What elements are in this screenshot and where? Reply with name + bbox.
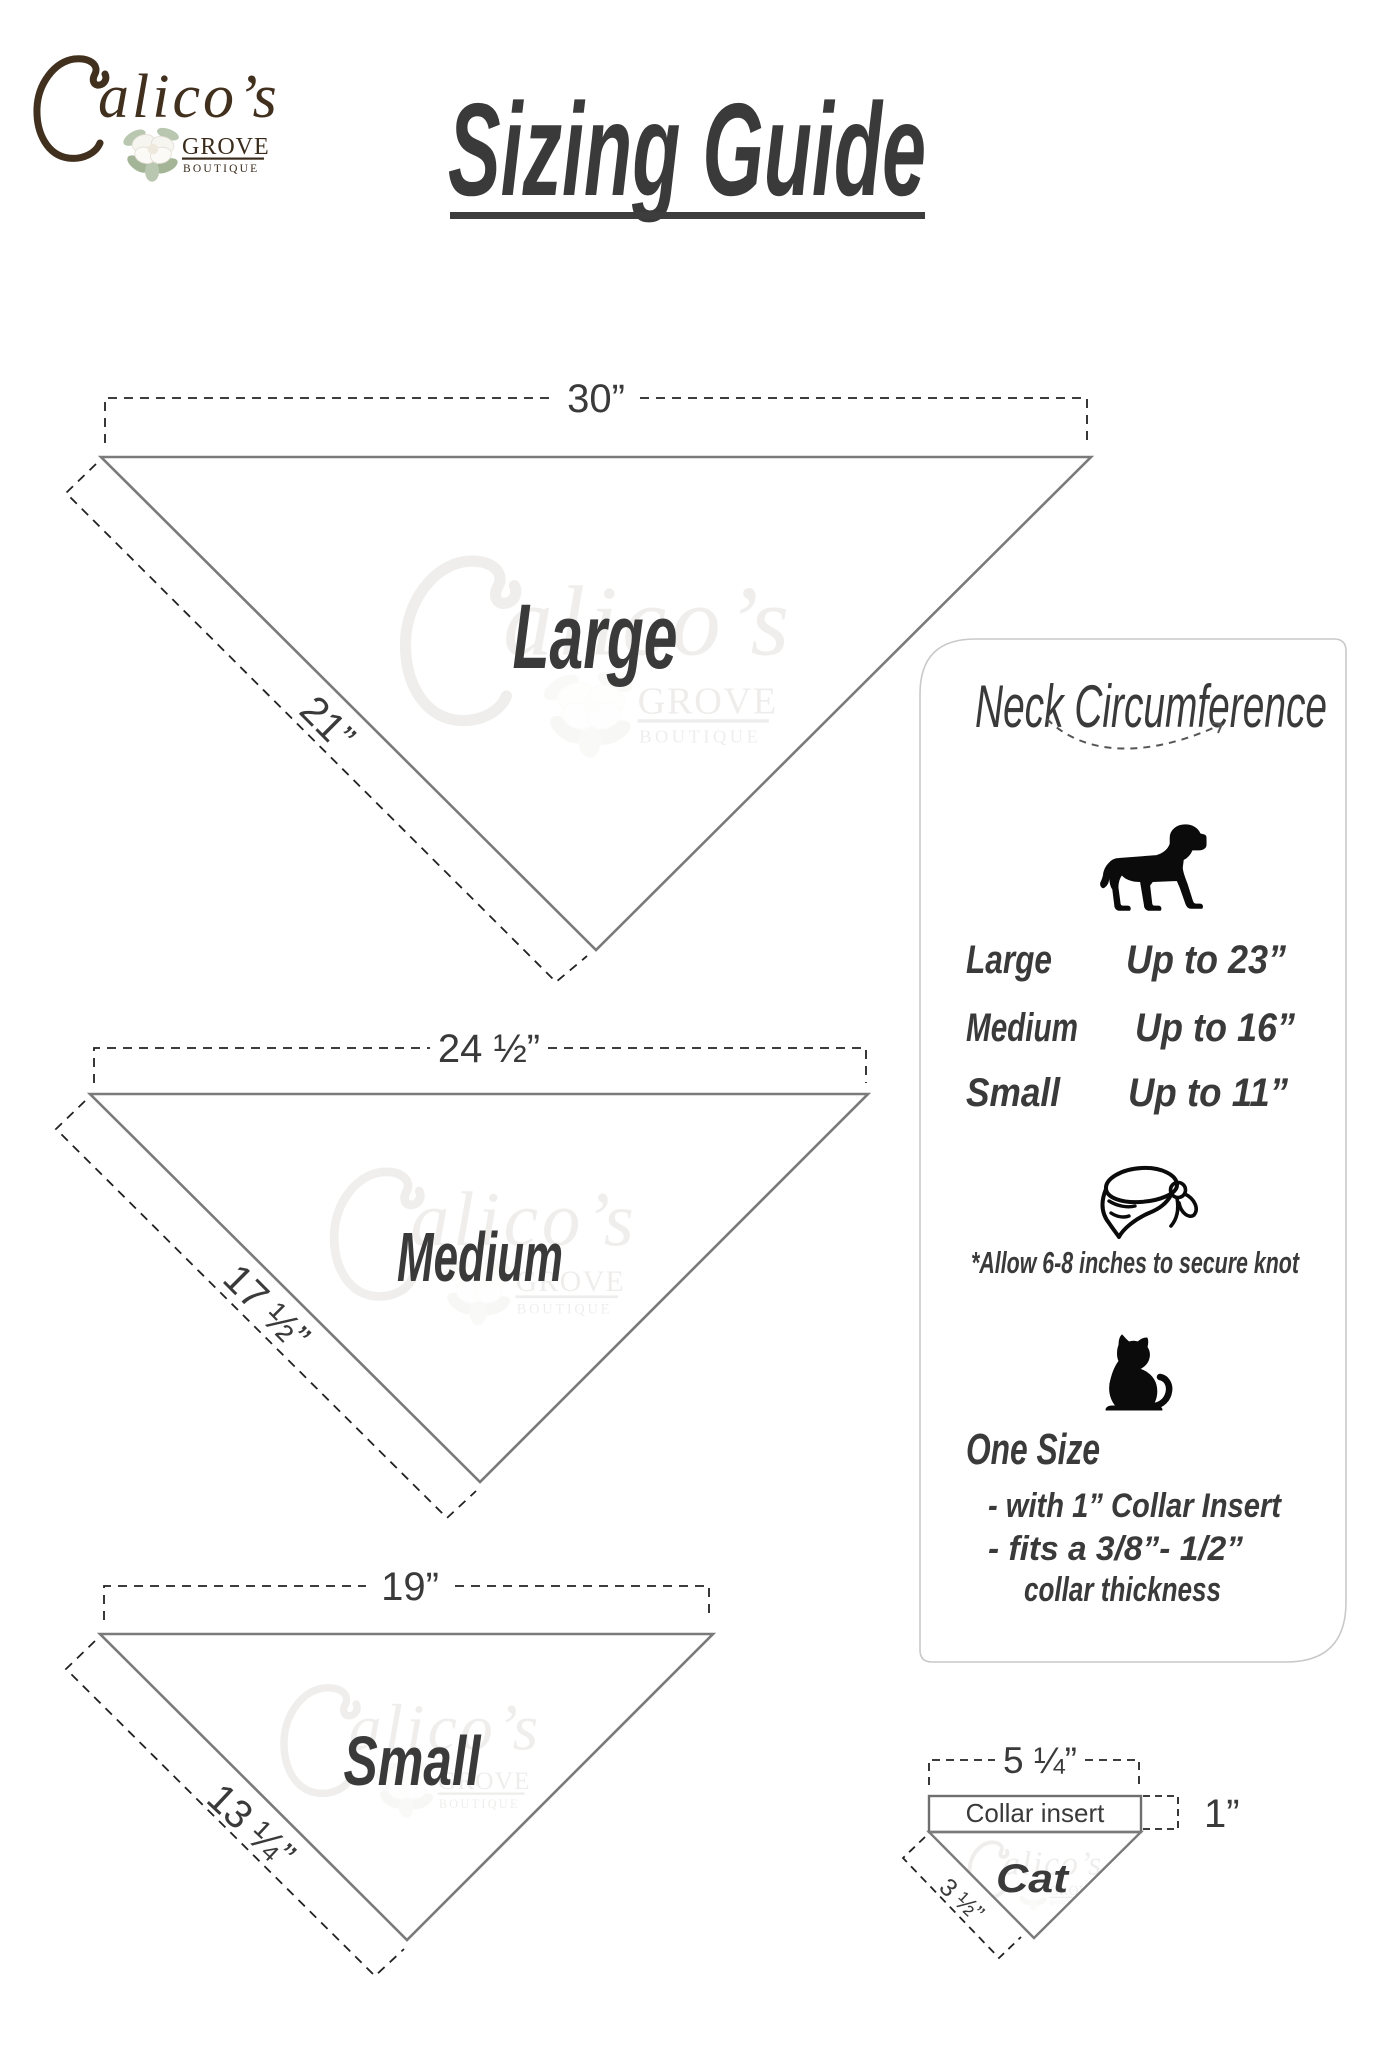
svg-text:One Size: One Size	[966, 1425, 1100, 1474]
svg-text:Up to 16”: Up to 16”	[1135, 1006, 1295, 1050]
svg-text:30”: 30”	[567, 377, 625, 421]
svg-text:Small: Small	[344, 1722, 482, 1800]
svg-text:*Allow 6-8 inches to secure kn: *Allow 6-8 inches to secure knot	[971, 1245, 1300, 1280]
svg-text:1”: 1”	[1204, 1792, 1240, 1836]
svg-text:- with 1” Collar Insert: - with 1” Collar Insert	[988, 1487, 1282, 1525]
svg-text:Cat: Cat	[996, 1857, 1070, 1901]
svg-text:collar thickness: collar thickness	[1024, 1571, 1221, 1609]
svg-text:Medium: Medium	[397, 1218, 563, 1296]
svg-text:Large: Large	[513, 586, 678, 688]
svg-text:Sizing Guide: Sizing Guide	[448, 76, 926, 223]
svg-text:Small: Small	[966, 1071, 1061, 1115]
svg-text:Neck Circumference: Neck Circumference	[975, 673, 1327, 740]
svg-text:Large: Large	[966, 938, 1052, 982]
svg-text:24 ½”: 24 ½”	[438, 1027, 540, 1071]
svg-text:19”: 19”	[381, 1565, 439, 1609]
svg-text:- fits a 3/8”- 1/2”: - fits a 3/8”- 1/2”	[988, 1530, 1243, 1568]
svg-text:Up to 11”: Up to 11”	[1128, 1071, 1288, 1115]
svg-text:Up to 23”: Up to 23”	[1126, 938, 1286, 982]
svg-text:Medium: Medium	[966, 1006, 1078, 1050]
svg-text:5 ¼”: 5 ¼”	[1003, 1740, 1077, 1781]
svg-text:Collar insert: Collar insert	[966, 1798, 1105, 1828]
